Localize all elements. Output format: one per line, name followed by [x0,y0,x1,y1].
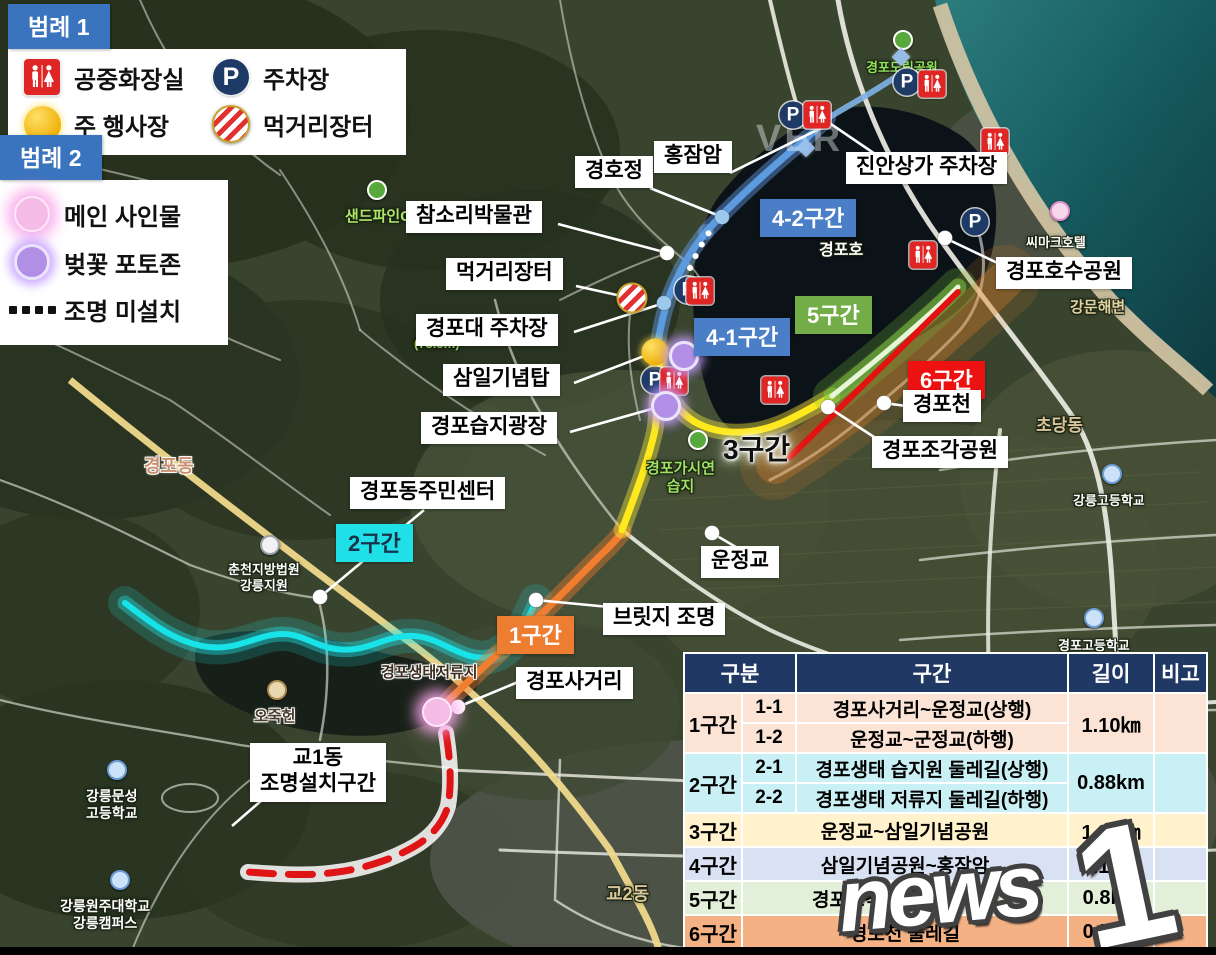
table-cell [1154,753,1207,813]
section-badge-1: 1구간 [497,616,574,654]
event-venue-icon [642,339,669,366]
table-cell [1154,881,1207,915]
callout-label: 참소리박물관 [406,201,542,233]
table-header-cell: 구분 [684,653,796,693]
callout-label: 교1동 조명설치구간 [250,743,386,802]
bottom-black-bar [0,947,1216,955]
table-row: 3구간운정교~삼일기념공원1.28㎞ [684,813,1207,847]
table-cell [1154,693,1207,753]
legend-1-title: 범례 1 [8,4,110,49]
table-row: 4구간삼일기념공원~홍잠암1.17㎞ [684,847,1207,881]
callout-label: 운정교 [701,546,779,578]
table-header-cell: 길이 [1068,653,1154,693]
trail-map-screenshot: VER 샌드파인GC경포도립공원경포호씨마크호텔강문해변초당동강릉고등학교경포고… [0,0,1216,955]
legend-item-label: 공중화장실 [74,60,184,95]
table-header-row: 구분구간길이비고 [684,653,1207,693]
map-label: 강문해변 [1070,299,1125,317]
restroom-marker [804,102,831,129]
route-table: 구분구간길이비고 1구간1-1경포사거리~운정교(상행)1.10㎞1-2운정교~… [683,652,1208,950]
table-cell: 0.5km [1068,915,1154,949]
callout-label: 경포습지광장 [421,412,557,444]
map-poi-green-icon [893,30,913,50]
parking-icon: P [780,102,807,129]
restroom-marker [687,278,714,305]
legend-1: 범례 1 공중화장실P주차장주 행사장먹거리장터 [8,4,406,155]
callout-label: 경포대 주차장 [416,314,558,346]
map-poi-hotel-icon [1050,201,1070,221]
photo-marker [651,391,681,421]
table-row: 2구간2-1경포생태 습지원 둘레길(상행)0.88km [684,753,1207,783]
map-poi-green-icon [688,430,708,450]
callout-label: 경호정 [575,156,653,188]
route-table-panel: 구분구간길이비고 1구간1-1경포사거리~운정교(상행)1.10㎞1-2운정교~… [683,652,1208,950]
diamond-marker [800,142,813,155]
map-label: 씨마크호텔 [1026,235,1086,251]
map-label: 교2동 [606,884,649,906]
table-cell: 경포조각공원~진안상가 [742,881,1068,915]
table-cell [1154,813,1207,847]
callout-label: 경포동주민센터 [350,477,505,509]
table-cell: 0.8km [1068,881,1154,915]
legend-item: 공중화장실 [20,59,205,95]
map-label: 경포동 [144,456,194,478]
restroom-icon [910,242,937,269]
map-poi-school-icon [110,870,130,890]
restroom-icon [24,59,60,95]
table-cell: 경포사거리~운정교(상행) [796,693,1068,723]
table-row: 1구간1-1경포사거리~운정교(상행)1.10㎞ [684,693,1207,723]
market-marker [617,283,648,314]
legend-item: P주차장 [209,59,394,95]
restroom-icon [804,102,831,129]
main-sign-marker [422,697,452,727]
map-poi-court-icon [260,535,280,555]
map-label: 초당동 [1036,416,1083,436]
bridge-marker-icon [797,139,815,157]
table-cell: 3구간 [684,813,742,847]
callout-label: 브릿지 조명 [603,603,725,635]
diamond-marker [895,51,908,64]
map-label: 강릉원주대학교 강릉캠퍼스 [60,898,150,932]
table-row: 5구간경포조각공원~진안상가0.8km [684,881,1207,915]
table-header-cell: 비고 [1154,653,1207,693]
table-cell: 2-1 [742,753,796,783]
table-cell: 운정교~군정교(하행) [796,723,1068,753]
table-cell: 2구간 [684,753,742,813]
table-cell: 6구간 [684,915,742,949]
table-cell: 1구간 [684,693,742,753]
legend-item: 조명 미설치 [10,292,218,327]
cherry-blossom-photo-zone-icon [651,391,681,421]
parking-icon: P [962,209,989,236]
table-header-cell: 구간 [796,653,1068,693]
table-cell: 0.88km [1068,753,1154,813]
map-label: 강릉고등학교 [1073,493,1145,509]
legend-2-title: 범례 2 [0,135,102,180]
table-cell: 1.17㎞ [1068,847,1154,881]
parking-marker: P [780,102,807,129]
event-marker [642,339,669,366]
map-poi-temple-icon [267,680,287,700]
restroom-marker [919,71,946,98]
map-poi-green-icon [367,180,387,200]
restroom-icon [687,278,714,305]
restroom-icon [919,71,946,98]
table-cell: 1.10㎞ [1068,693,1154,753]
callout-label: 경포조각공원 [872,436,1008,468]
table-cell: 경포생태 습지원 둘레길(상행) [796,753,1068,783]
section-badge-4-2: 4-2구간 [760,199,856,237]
section-badge-4-1: 4-1구간 [694,318,790,356]
map-label: 경포생태저류지 [381,664,478,682]
map-poi-school-icon [1084,608,1104,628]
legend-item-label: 벚꽃 포토존 [64,245,181,280]
main-sign-icon [14,196,50,232]
callout-label: 진안상가 주차장 [846,152,1007,184]
main-sign-icon [422,697,452,727]
callout-label: 먹거리장터 [446,258,563,290]
table-row: 6구간경포천 둘레길0.5km [684,915,1207,949]
table-cell: 5구간 [684,881,742,915]
legend-item-label: 먹거리장터 [263,107,373,142]
table-cell: 경포생태 저류지 둘레길(하행) [796,783,1068,813]
legend-item: 먹거리장터 [209,105,394,143]
callout-label: 경포사거리 [516,667,633,699]
table-cell [1154,847,1207,881]
section-badge-5: 5구간 [795,296,872,334]
callout-label: 경포호수공원 [996,257,1132,289]
restroom-marker [910,242,937,269]
section-badge-3: 3구간 [723,428,790,468]
map-label: 오죽헌 [254,708,295,726]
legend-item: 메인 사인물 [10,196,218,232]
parking-marker: P [962,209,989,236]
callout-label: 홍잠암 [654,141,732,173]
restroom-marker [762,377,789,404]
restroom-icon [762,377,789,404]
legend-item-label: 메인 사인물 [64,197,181,232]
map-label: 춘천지방법원 강릉지원 [228,562,300,593]
table-cell: 1.28㎞ [1068,813,1154,847]
dotted-line-icon [9,306,56,314]
legend-item-label: 주차장 [263,60,329,95]
legend-2: 범례 2 메인 사인물벚꽃 포토존조명 미설치 [0,135,228,345]
bridge-marker-icon [892,48,910,66]
table-cell: 1-2 [742,723,796,753]
section-badge-2: 2구간 [336,524,413,562]
food-market-icon [617,283,648,314]
table-cell: 운정교~삼일기념공원 [742,813,1068,847]
map-poi-school-icon [1102,464,1122,484]
table-cell: 1-1 [742,693,796,723]
callout-label: 경포천 [903,390,981,422]
map-label: 강릉문성 고등학교 [86,788,138,822]
map-poi-school-icon [107,760,127,780]
parking-icon: P [894,69,921,96]
cherry-blossom-photo-zone-icon [14,244,50,280]
table-cell: 2-2 [742,783,796,813]
legend-item: 벚꽃 포토존 [10,244,218,280]
parking-marker: P [894,69,921,96]
table-cell: 4구간 [684,847,742,881]
legend-item-label: 조명 미설치 [64,292,181,327]
callout-label: 삼일기념탑 [443,364,560,396]
table-cell [1154,915,1207,949]
map-label: 경포가시연 습지 [646,460,715,496]
parking-icon: P [213,59,249,95]
map-label: 경포호 [819,241,863,260]
table-cell: 경포천 둘레길 [742,915,1068,949]
table-cell: 삼일기념공원~홍잠암 [742,847,1068,881]
